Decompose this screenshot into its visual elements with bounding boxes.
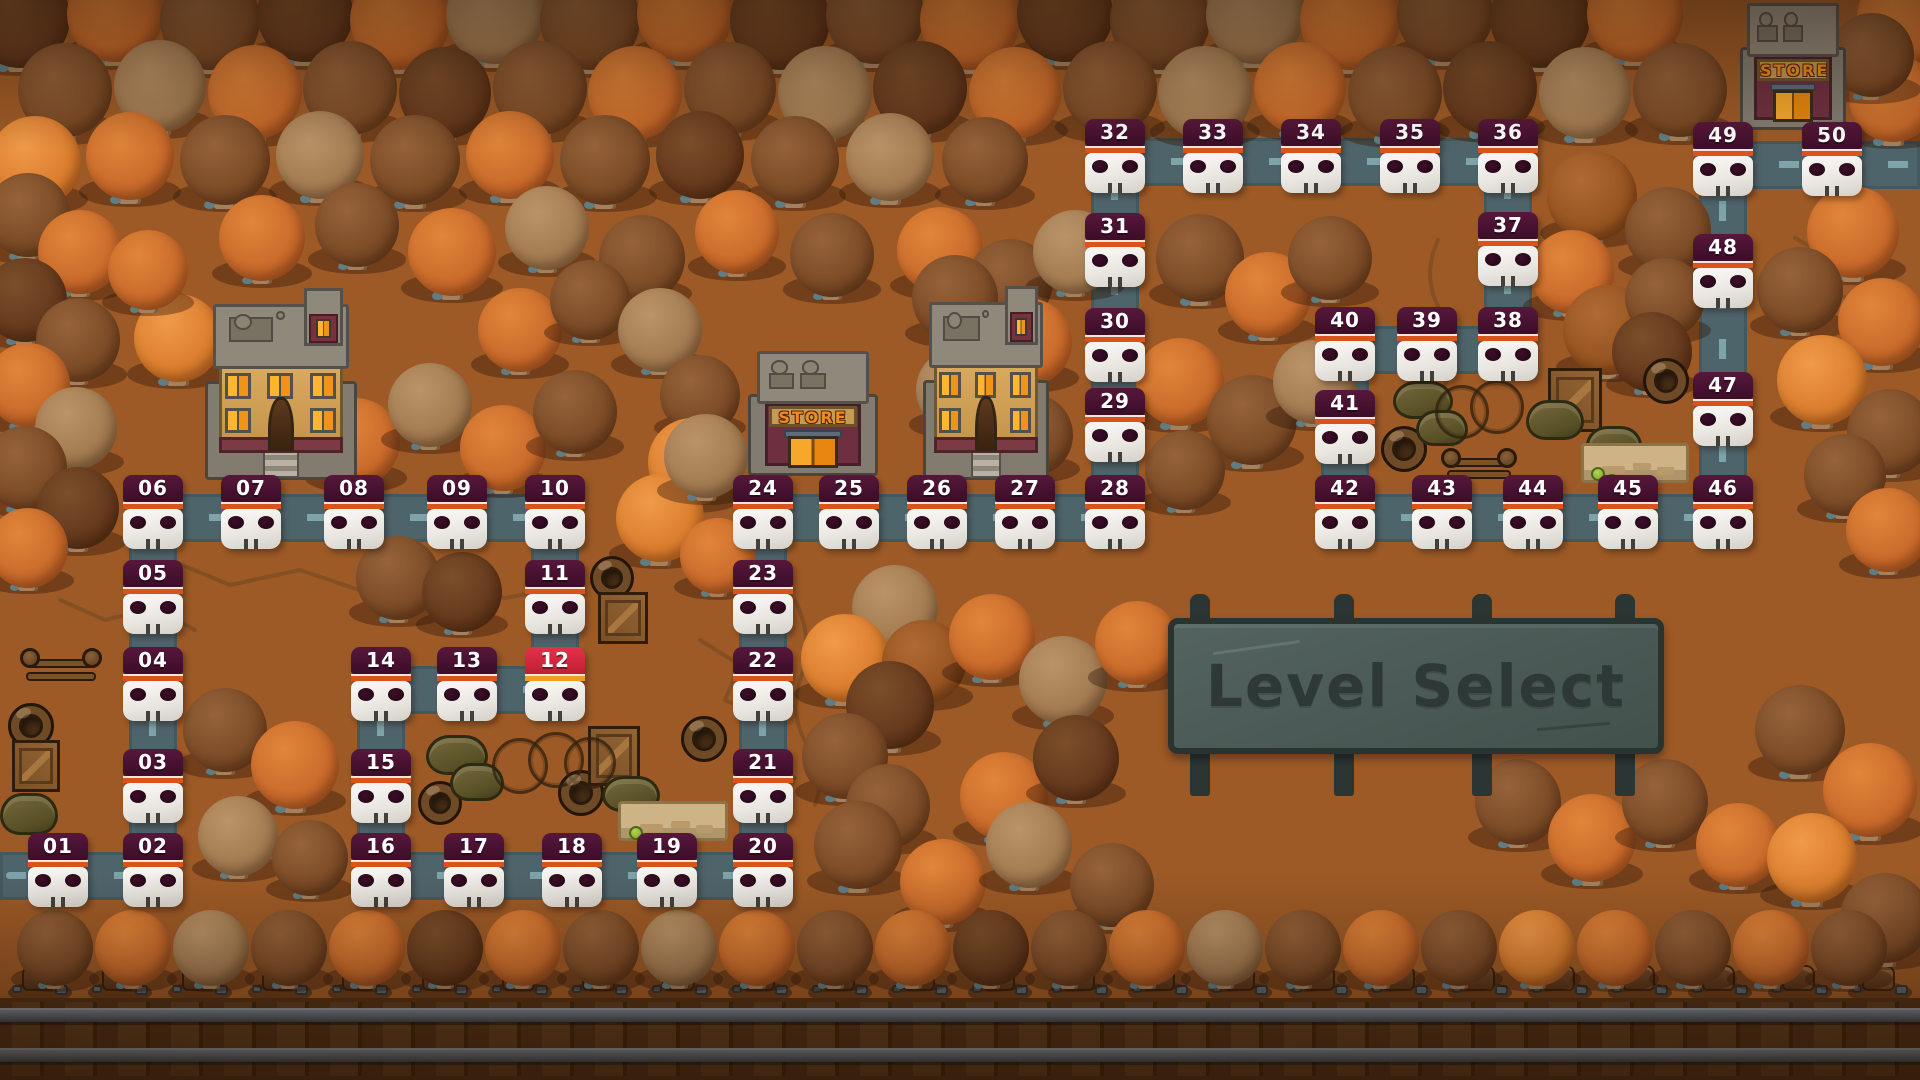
skull-icon bbox=[351, 867, 411, 907]
stump-rock bbox=[1612, 985, 1622, 993]
level-node-48[interactable]: 48 bbox=[1693, 234, 1753, 308]
level-number: 08 bbox=[324, 475, 384, 502]
skull-icon bbox=[819, 509, 879, 549]
sandbag bbox=[0, 793, 58, 835]
level-number: 22 bbox=[733, 647, 793, 674]
skull-teeth bbox=[1329, 539, 1361, 549]
house-window bbox=[225, 373, 251, 398]
stump-rock bbox=[455, 985, 468, 995]
sign-board: Level Select bbox=[1168, 618, 1664, 754]
level-node-20[interactable]: 20 bbox=[733, 833, 793, 907]
stump-log bbox=[1062, 965, 1095, 991]
level-node-28[interactable]: 28 bbox=[1085, 475, 1145, 549]
skull-teeth bbox=[539, 624, 571, 634]
level-node-stripe bbox=[1693, 399, 1753, 406]
level-node-stripe bbox=[1412, 502, 1472, 509]
skull-teeth bbox=[1517, 539, 1549, 549]
skull-eye-right bbox=[770, 601, 786, 614]
skull-icon bbox=[525, 681, 585, 721]
rail-bottom bbox=[0, 1048, 1920, 1062]
level-node-31[interactable]: 31 bbox=[1085, 213, 1145, 287]
skull-teeth bbox=[1099, 277, 1131, 287]
level-number: 42 bbox=[1315, 475, 1375, 502]
level-node-47[interactable]: 47 bbox=[1693, 372, 1753, 446]
level-node-43[interactable]: 43 bbox=[1412, 475, 1472, 549]
level-number: 40 bbox=[1315, 307, 1375, 334]
house-door bbox=[975, 396, 996, 451]
skull-icon bbox=[351, 681, 411, 721]
level-node-45[interactable]: 45 bbox=[1598, 475, 1658, 549]
level-number: 25 bbox=[819, 475, 879, 502]
skull-eye-left bbox=[1092, 429, 1108, 442]
stump-rock bbox=[1532, 985, 1542, 993]
level-number: 17 bbox=[444, 833, 504, 860]
store-sign-label: STORE bbox=[1757, 59, 1829, 81]
level-number: 13 bbox=[437, 647, 497, 674]
skull-teeth bbox=[1816, 186, 1848, 196]
skull-icon bbox=[995, 509, 1055, 549]
level-node-19[interactable]: 19 bbox=[637, 833, 697, 907]
level-number: 33 bbox=[1183, 119, 1243, 146]
skull-eye-left bbox=[1387, 160, 1403, 173]
level-node-44[interactable]: 44 bbox=[1503, 475, 1563, 549]
stump-rock bbox=[1015, 985, 1028, 995]
stump-rock bbox=[1815, 985, 1828, 995]
level-node-stripe bbox=[427, 502, 487, 509]
skull-eye-left bbox=[532, 688, 548, 701]
skull-teeth bbox=[556, 897, 588, 907]
stump-rock bbox=[892, 985, 902, 993]
level-node-10[interactable]: 10 bbox=[525, 475, 585, 549]
level-number: 43 bbox=[1412, 475, 1472, 502]
level-node-21[interactable]: 21 bbox=[733, 749, 793, 823]
fence-post bbox=[82, 648, 102, 668]
skull-eye-left bbox=[130, 688, 146, 701]
plank-detail bbox=[640, 824, 663, 831]
level-number: 09 bbox=[427, 475, 487, 502]
skull-teeth bbox=[747, 897, 779, 907]
stump-log bbox=[262, 965, 295, 991]
level-node-09[interactable]: 09 bbox=[427, 475, 487, 549]
level-node-38[interactable]: 38 bbox=[1478, 307, 1538, 381]
skull-teeth bbox=[365, 897, 397, 907]
skull-eye-left bbox=[444, 688, 460, 701]
skull-icon bbox=[1503, 509, 1563, 549]
level-node-stripe bbox=[1380, 146, 1440, 153]
level-number: 34 bbox=[1281, 119, 1341, 146]
skull-eye-left bbox=[1322, 348, 1338, 361]
barbed-wire-coil bbox=[1470, 380, 1524, 434]
skull-icon bbox=[1412, 509, 1472, 549]
level-number: 15 bbox=[351, 749, 411, 776]
level-node-05[interactable]: 05 bbox=[123, 560, 183, 634]
stump-rock bbox=[492, 985, 502, 993]
level-select-screen: STORESTORE Level Select 0102030405060708… bbox=[0, 0, 1920, 1080]
level-node-stripe bbox=[1478, 334, 1538, 341]
skull-icon bbox=[1085, 153, 1145, 193]
level-node-50[interactable]: 50 bbox=[1802, 122, 1862, 196]
level-node-18[interactable]: 18 bbox=[542, 833, 602, 907]
skull-teeth bbox=[365, 711, 397, 721]
skull-icon bbox=[637, 867, 697, 907]
stump-rock bbox=[1335, 985, 1348, 995]
plank-detail bbox=[1657, 467, 1673, 474]
level-number: 26 bbox=[907, 475, 967, 502]
skull-eye-left bbox=[1700, 413, 1716, 426]
level-node-22[interactable]: 22 bbox=[733, 647, 793, 721]
level-node-stripe bbox=[351, 674, 411, 681]
level-node-24[interactable]: 24 bbox=[733, 475, 793, 549]
level-node-32[interactable]: 32 bbox=[1085, 119, 1145, 193]
skull-teeth bbox=[1329, 371, 1361, 381]
level-node-41[interactable]: 41 bbox=[1315, 390, 1375, 464]
level-node-stripe bbox=[351, 860, 411, 867]
sign-post bbox=[1334, 748, 1354, 796]
skull-eye-left bbox=[434, 516, 450, 529]
skull-teeth bbox=[137, 624, 169, 634]
stump-rock bbox=[1735, 985, 1748, 995]
house-window bbox=[939, 372, 960, 397]
skull-icon bbox=[123, 783, 183, 823]
skull-eye-left bbox=[914, 516, 930, 529]
stump-rock bbox=[1415, 985, 1428, 995]
store-roof bbox=[1747, 3, 1838, 58]
barrel bbox=[1643, 358, 1689, 404]
skull-icon bbox=[1478, 153, 1538, 193]
skull-icon bbox=[525, 594, 585, 634]
skull-teeth bbox=[1394, 183, 1426, 193]
sandbag bbox=[1526, 400, 1584, 440]
skull-eye-right bbox=[770, 874, 786, 887]
skull-icon bbox=[1478, 341, 1538, 381]
level-number: 50 bbox=[1802, 122, 1862, 149]
skull-icon bbox=[1693, 268, 1753, 308]
fence-rail bbox=[26, 672, 96, 681]
skull-eye-right bbox=[464, 516, 480, 529]
skull-eye-left bbox=[1322, 516, 1338, 529]
level-node-39[interactable]: 39 bbox=[1397, 307, 1457, 381]
stump-rock bbox=[855, 985, 868, 995]
skull-eye-right bbox=[1352, 348, 1368, 361]
level-number: 02 bbox=[123, 833, 183, 860]
skull-eye-right bbox=[1515, 253, 1531, 266]
skull-eye-right bbox=[361, 516, 377, 529]
level-node-stripe bbox=[995, 502, 1055, 509]
skull-icon bbox=[733, 783, 793, 823]
skull-icon bbox=[444, 867, 504, 907]
level-node-stripe bbox=[1693, 261, 1753, 268]
skull-icon bbox=[437, 681, 497, 721]
stump-rock bbox=[215, 985, 228, 995]
skull-eye-left bbox=[1485, 160, 1501, 173]
skull-teeth bbox=[747, 539, 779, 549]
level-node-stripe bbox=[1693, 149, 1753, 156]
skull-eye-right bbox=[1839, 163, 1855, 176]
plank-detail bbox=[696, 825, 713, 832]
stump-rock bbox=[732, 985, 742, 993]
stump-rock bbox=[375, 985, 388, 995]
crate bbox=[598, 592, 648, 644]
skull-eye-left bbox=[1700, 516, 1716, 529]
level-node-stripe bbox=[733, 860, 793, 867]
skull-eye-right bbox=[388, 688, 404, 701]
sign-post bbox=[1615, 748, 1635, 796]
skull-icon bbox=[1315, 424, 1375, 464]
level-node-stripe bbox=[1085, 415, 1145, 422]
stump-rock bbox=[55, 985, 68, 995]
skull-eye-right bbox=[1352, 431, 1368, 444]
skull-eye-right bbox=[1122, 254, 1138, 267]
stump-log bbox=[342, 965, 375, 991]
level-number: 05 bbox=[123, 560, 183, 587]
skull-teeth bbox=[235, 539, 267, 549]
level-number: 36 bbox=[1478, 119, 1538, 146]
skull-eye-right bbox=[1730, 413, 1746, 426]
stump-log bbox=[502, 965, 535, 991]
level-node-33[interactable]: 33 bbox=[1183, 119, 1243, 193]
stump-rock bbox=[412, 985, 422, 993]
skull-eye-right bbox=[1730, 275, 1746, 288]
skull-teeth bbox=[1707, 186, 1739, 196]
level-node-stripe bbox=[123, 860, 183, 867]
level-number: 06 bbox=[123, 475, 183, 502]
level-node-13[interactable]: 13 bbox=[437, 647, 497, 721]
store-door bbox=[1773, 90, 1813, 123]
skull-eye-right bbox=[579, 874, 595, 887]
level-node-stripe bbox=[1315, 502, 1375, 509]
level-node-40[interactable]: 40 bbox=[1315, 307, 1375, 381]
level-node-16[interactable]: 16 bbox=[351, 833, 411, 907]
stump-log bbox=[982, 965, 1015, 991]
sign-post bbox=[1190, 748, 1210, 796]
stump-rock bbox=[1655, 985, 1668, 995]
level-node-17[interactable]: 17 bbox=[444, 833, 504, 907]
level-node-25[interactable]: 25 bbox=[819, 475, 879, 549]
level-number: 29 bbox=[1085, 388, 1145, 415]
stump-rock bbox=[775, 985, 788, 995]
stump-rock bbox=[1175, 985, 1188, 995]
house-window bbox=[975, 372, 996, 397]
stump-rock bbox=[812, 985, 822, 993]
level-node-stripe bbox=[1397, 334, 1457, 341]
stump-rock bbox=[1692, 985, 1702, 993]
stump-log bbox=[1462, 965, 1495, 991]
skull-eye-right bbox=[388, 874, 404, 887]
roof-vent bbox=[1757, 25, 1777, 42]
skull-eye-right bbox=[160, 790, 176, 803]
stump-log bbox=[1702, 965, 1735, 991]
store-roof bbox=[757, 351, 869, 405]
skull-eye-left bbox=[549, 874, 565, 887]
level-node-08[interactable]: 08 bbox=[324, 475, 384, 549]
skull-eye-left bbox=[1404, 348, 1420, 361]
house-dormer bbox=[304, 288, 344, 346]
level-node-14[interactable]: 14 bbox=[351, 647, 411, 721]
stump-rock bbox=[295, 985, 308, 995]
skull-eye-left bbox=[228, 516, 244, 529]
skull-icon bbox=[1085, 422, 1145, 462]
skull-icon bbox=[733, 509, 793, 549]
skull-eye-right bbox=[770, 516, 786, 529]
skull-eye-left bbox=[1092, 516, 1108, 529]
store-building[interactable]: STORE bbox=[748, 348, 878, 476]
level-node-stripe bbox=[1085, 146, 1145, 153]
stump-rock bbox=[695, 985, 708, 995]
house-dormer bbox=[1005, 286, 1038, 345]
level-node-07[interactable]: 07 bbox=[221, 475, 281, 549]
skull-icon bbox=[1281, 153, 1341, 193]
skull-eye-left bbox=[740, 601, 756, 614]
stump-rock bbox=[92, 985, 102, 993]
level-node-03[interactable]: 03 bbox=[123, 749, 183, 823]
stump-rock bbox=[1452, 985, 1462, 993]
level-node-37[interactable]: 37 bbox=[1478, 212, 1538, 286]
skull-icon bbox=[1397, 341, 1457, 381]
level-number: 18 bbox=[542, 833, 602, 860]
level-number: 37 bbox=[1478, 212, 1538, 239]
level-node-stripe bbox=[637, 860, 697, 867]
stump-rock bbox=[535, 985, 548, 995]
skull-teeth bbox=[1099, 452, 1131, 462]
skull-eye-left bbox=[1002, 516, 1018, 529]
dormer-face bbox=[309, 314, 337, 343]
skull-eye-left bbox=[1092, 254, 1108, 267]
level-node-30[interactable]: 30 bbox=[1085, 308, 1145, 382]
store-building[interactable]: STORE bbox=[1740, 0, 1846, 130]
skull-teeth bbox=[921, 539, 953, 549]
house-window bbox=[267, 373, 293, 398]
level-node-stripe bbox=[221, 502, 281, 509]
level-number: 48 bbox=[1693, 234, 1753, 261]
store-sign-label: STORE bbox=[769, 406, 857, 428]
skull-eye-right bbox=[160, 688, 176, 701]
skull-icon bbox=[525, 509, 585, 549]
level-node-01[interactable]: 01 bbox=[28, 833, 88, 907]
skull-eye-left bbox=[451, 874, 467, 887]
skull-teeth bbox=[42, 897, 74, 907]
level-node-stripe bbox=[819, 502, 879, 509]
stump-rock bbox=[172, 985, 182, 993]
skull-eye-right bbox=[160, 601, 176, 614]
level-number: 32 bbox=[1085, 119, 1145, 146]
level-node-04[interactable]: 04 bbox=[123, 647, 183, 721]
level-node-stripe bbox=[1085, 240, 1145, 247]
skull-eye-left bbox=[740, 874, 756, 887]
stump-log bbox=[102, 965, 135, 991]
stump-log bbox=[1622, 965, 1655, 991]
skull-teeth bbox=[1492, 183, 1524, 193]
skull-eye-right bbox=[474, 688, 490, 701]
stump-rock bbox=[652, 985, 662, 993]
skull-eye-right bbox=[562, 516, 578, 529]
level-node-15[interactable]: 15 bbox=[351, 749, 411, 823]
level-number: 45 bbox=[1598, 475, 1658, 502]
skull-teeth bbox=[1612, 539, 1644, 549]
skull-eye-left bbox=[331, 516, 347, 529]
level-node-46[interactable]: 46 bbox=[1693, 475, 1753, 549]
skull-eye-right bbox=[674, 874, 690, 887]
skull-icon bbox=[123, 681, 183, 721]
level-node-12[interactable]: 12 bbox=[525, 647, 585, 721]
skull-eye-left bbox=[1485, 253, 1501, 266]
stump-rock bbox=[1132, 985, 1142, 993]
skull-icon bbox=[123, 509, 183, 549]
level-node-stripe bbox=[437, 674, 497, 681]
skull-eye-right bbox=[1434, 348, 1450, 361]
skull-teeth bbox=[747, 624, 779, 634]
level-number: 12 bbox=[525, 647, 585, 674]
level-node-23[interactable]: 23 bbox=[733, 560, 793, 634]
skull-icon bbox=[1085, 247, 1145, 287]
level-node-06[interactable]: 06 bbox=[123, 475, 183, 549]
skull-icon bbox=[1315, 341, 1375, 381]
level-node-stripe bbox=[525, 674, 585, 681]
level-number: 35 bbox=[1380, 119, 1440, 146]
level-node-stripe bbox=[1085, 502, 1145, 509]
skull-icon bbox=[1183, 153, 1243, 193]
skull-teeth bbox=[747, 711, 779, 721]
skull-teeth bbox=[458, 897, 490, 907]
level-node-29[interactable]: 29 bbox=[1085, 388, 1145, 462]
skull-teeth bbox=[1707, 539, 1739, 549]
skull-teeth bbox=[137, 897, 169, 907]
skull-eye-left bbox=[740, 516, 756, 529]
level-node-stripe bbox=[733, 674, 793, 681]
skull-eye-left bbox=[130, 601, 146, 614]
roof-vent bbox=[1783, 25, 1803, 42]
level-node-35[interactable]: 35 bbox=[1380, 119, 1440, 193]
stump-rock bbox=[572, 985, 582, 993]
stump-rock bbox=[1052, 985, 1062, 993]
skull-eye-left bbox=[1419, 516, 1435, 529]
level-node-02[interactable]: 02 bbox=[123, 833, 183, 907]
level-node-49[interactable]: 49 bbox=[1693, 122, 1753, 196]
skull-eye-right bbox=[1122, 349, 1138, 362]
level-number: 01 bbox=[28, 833, 88, 860]
stump-log bbox=[182, 965, 215, 991]
house-window bbox=[310, 408, 336, 433]
skull-eye-left bbox=[1605, 516, 1621, 529]
level-node-34[interactable]: 34 bbox=[1281, 119, 1341, 193]
house-window bbox=[1010, 408, 1031, 433]
level-node-42[interactable]: 42 bbox=[1315, 475, 1375, 549]
plank-detail bbox=[1602, 466, 1624, 473]
stump-rock bbox=[252, 985, 262, 993]
roof-vent-lid bbox=[276, 311, 285, 319]
level-number: 31 bbox=[1085, 213, 1145, 240]
sign-post bbox=[1472, 748, 1492, 796]
skull-teeth bbox=[1492, 371, 1524, 381]
level-node-11[interactable]: 11 bbox=[525, 560, 585, 634]
sign-title: Level Select bbox=[1206, 652, 1626, 720]
skull-eye-left bbox=[644, 874, 660, 887]
level-node-36[interactable]: 36 bbox=[1478, 119, 1538, 193]
house-building bbox=[205, 288, 357, 482]
stump-rock bbox=[1772, 985, 1782, 993]
level-node-26[interactable]: 26 bbox=[907, 475, 967, 549]
skull-teeth bbox=[1329, 454, 1361, 464]
skull-teeth bbox=[1099, 539, 1131, 549]
level-number: 19 bbox=[637, 833, 697, 860]
skull-eye-left bbox=[1322, 431, 1338, 444]
level-node-27[interactable]: 27 bbox=[995, 475, 1055, 549]
skull-teeth bbox=[1099, 183, 1131, 193]
level-node-stripe bbox=[1478, 146, 1538, 153]
skull-eye-right bbox=[944, 516, 960, 529]
stump-rock bbox=[135, 985, 148, 995]
skull-icon bbox=[1598, 509, 1658, 549]
skull-eye-right bbox=[1635, 516, 1651, 529]
